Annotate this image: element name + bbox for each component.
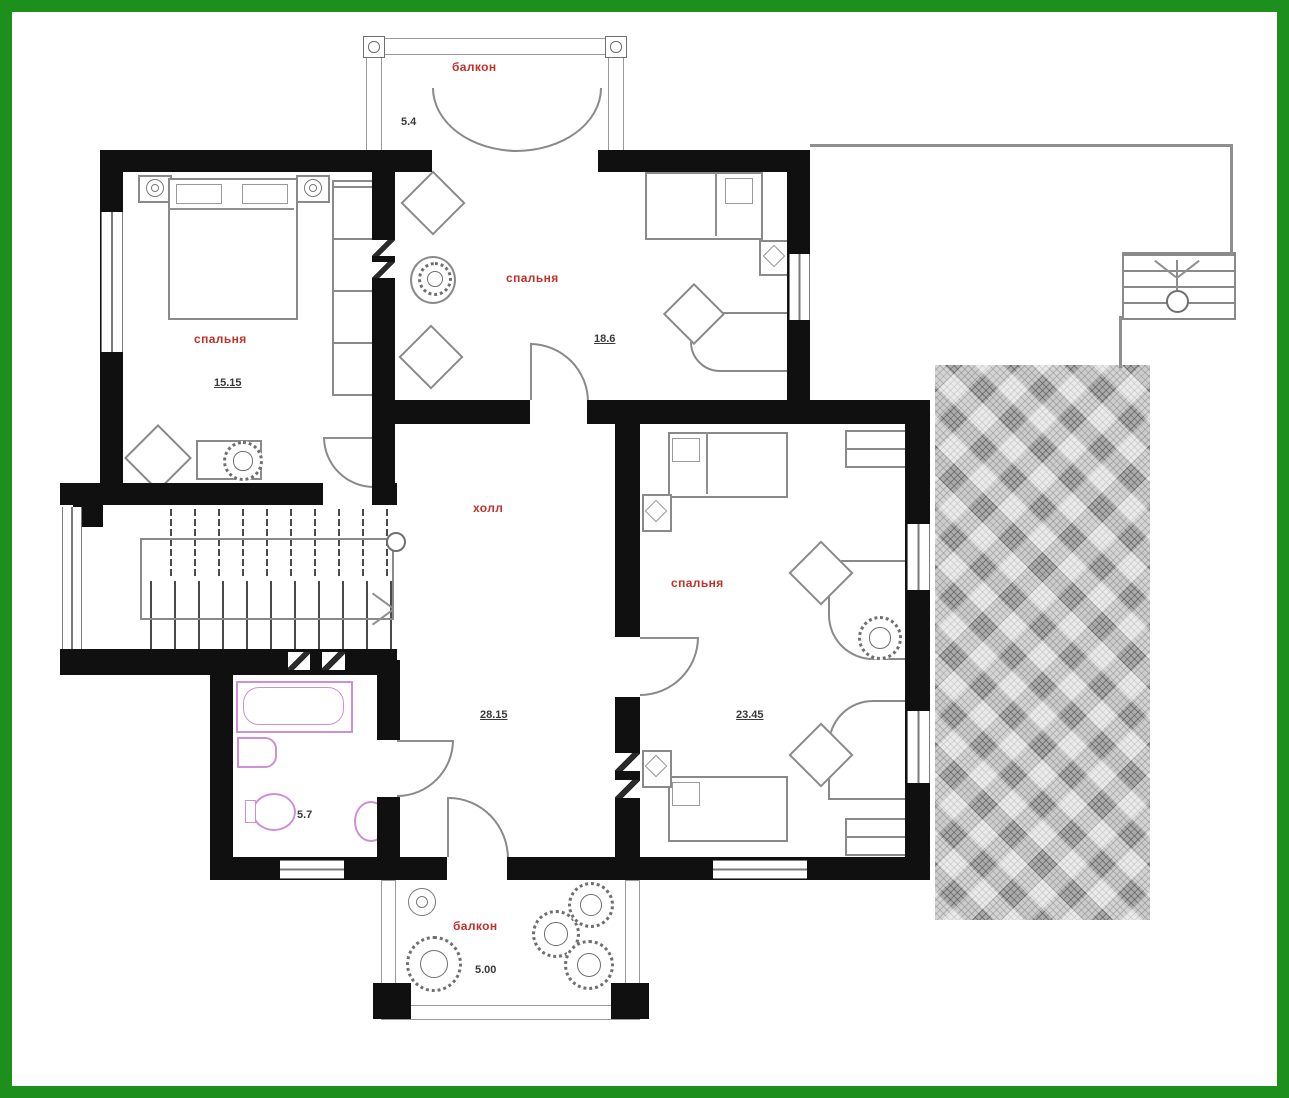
- shelf: [845, 430, 911, 468]
- plant-icon: [406, 936, 462, 992]
- plant-icon: [418, 262, 452, 296]
- wall-bathroom-right-lower: [377, 797, 400, 857]
- lamp-icon: [304, 179, 322, 197]
- room-area-bedroom-top: 18.6: [594, 333, 615, 345]
- window-bedroom-right-bottom: [713, 860, 807, 879]
- wall-hall-top-right: [587, 400, 930, 424]
- path-line-top: [810, 144, 1233, 147]
- room-area-bedroom-right: 23.45: [736, 709, 764, 721]
- window-bedroom-right-2: [907, 711, 930, 783]
- plant-icon: [568, 882, 614, 928]
- armchair: [124, 424, 192, 492]
- door-arc-bedroom-top: [530, 343, 589, 402]
- blanket-line: [168, 208, 294, 210]
- armchair: [400, 170, 465, 235]
- window-bathroom: [280, 860, 344, 879]
- wall-vent-marker: [615, 780, 640, 798]
- french-door-right-arc: [516, 88, 602, 152]
- wall-stairs-top-right: [372, 483, 397, 505]
- plant-icon: [564, 940, 614, 990]
- pillow: [725, 178, 753, 204]
- toilet: [252, 793, 296, 831]
- door-arc-balcony: [449, 797, 509, 859]
- wall-vent-marker: [288, 652, 310, 670]
- stairs-start-circle: [1166, 290, 1189, 313]
- wall-right-exterior-lower: [905, 420, 930, 880]
- wall-bedrooms-divider: [372, 150, 395, 505]
- wall-bathroom-right-upper: [377, 660, 400, 740]
- room-label-balcony-top: балкон: [452, 60, 497, 74]
- pot-icon: [408, 888, 436, 916]
- french-door-left-arc: [432, 88, 518, 152]
- balcony-post-icon: [363, 36, 385, 58]
- armchair: [398, 324, 463, 389]
- window-bedroom-right-1: [907, 524, 930, 590]
- sink: [237, 737, 277, 768]
- room-label-bedroom-top: спальня: [506, 271, 559, 285]
- pillow: [242, 184, 288, 204]
- pillow: [672, 438, 700, 462]
- door-arc-bedroom-left: [323, 437, 374, 488]
- balcony-post-icon: [605, 36, 627, 58]
- stairs-newel-circle: [386, 532, 406, 552]
- wall-vent-marker: [372, 240, 395, 256]
- pillow: [672, 782, 700, 806]
- pillow: [176, 184, 222, 204]
- terrace-hatched: [935, 365, 1150, 920]
- room-label-hall: холл: [473, 501, 503, 515]
- balcony-bottom-rail: [381, 1005, 640, 1020]
- room-label-bedroom-right: спальня: [671, 576, 724, 590]
- plant-icon: [223, 441, 263, 481]
- lamp-icon: [146, 179, 164, 197]
- stairs-stringer-outline: [140, 538, 394, 620]
- wall-vent-marker: [615, 753, 640, 771]
- door-arc-bathroom: [397, 740, 454, 797]
- path-line-right: [1230, 144, 1233, 256]
- door-arc-bedroom-right: [640, 637, 699, 696]
- blanket-line: [706, 432, 708, 494]
- shelf: [845, 818, 911, 856]
- room-area-bedroom-left: 15.15: [214, 377, 242, 389]
- room-area-balcony-top: 5.4: [401, 116, 416, 128]
- wall-hall-bedroom-upper: [615, 424, 640, 637]
- blanket-line: [715, 172, 717, 236]
- floor-plan-canvas: балкон 5.4 спальня 15.15 спальня 18.6 хо…: [0, 0, 1289, 1098]
- room-area-bathroom: 5.7: [297, 809, 312, 821]
- window-bedroom-top: [789, 254, 810, 320]
- balcony-post-left: [373, 983, 411, 1019]
- window-left-bedroom: [101, 212, 123, 352]
- wall-bathroom-left: [210, 660, 233, 880]
- window-stairs: [62, 507, 82, 649]
- plant-icon: [858, 616, 902, 660]
- balcony-post-right: [611, 983, 649, 1019]
- wardrobe: [332, 180, 374, 396]
- wall-hall-bottom-left: [395, 857, 447, 880]
- toilet-tank: [245, 800, 256, 823]
- wall-vent-marker: [372, 262, 395, 278]
- room-label-balcony-bottom: балкон: [453, 919, 498, 933]
- wall-vent-marker: [322, 652, 345, 670]
- balcony-top-rail: [366, 38, 624, 55]
- wall-hall-top-left: [372, 400, 530, 424]
- room-area-hall: 28.15: [480, 709, 508, 721]
- room-label-bedroom-left: спальня: [194, 332, 247, 346]
- room-area-balcony-bottom: 5.00: [475, 964, 496, 976]
- path-line-to-terrace: [1119, 316, 1122, 368]
- wall-top-right: [598, 150, 810, 172]
- bathtub-inner: [243, 687, 344, 725]
